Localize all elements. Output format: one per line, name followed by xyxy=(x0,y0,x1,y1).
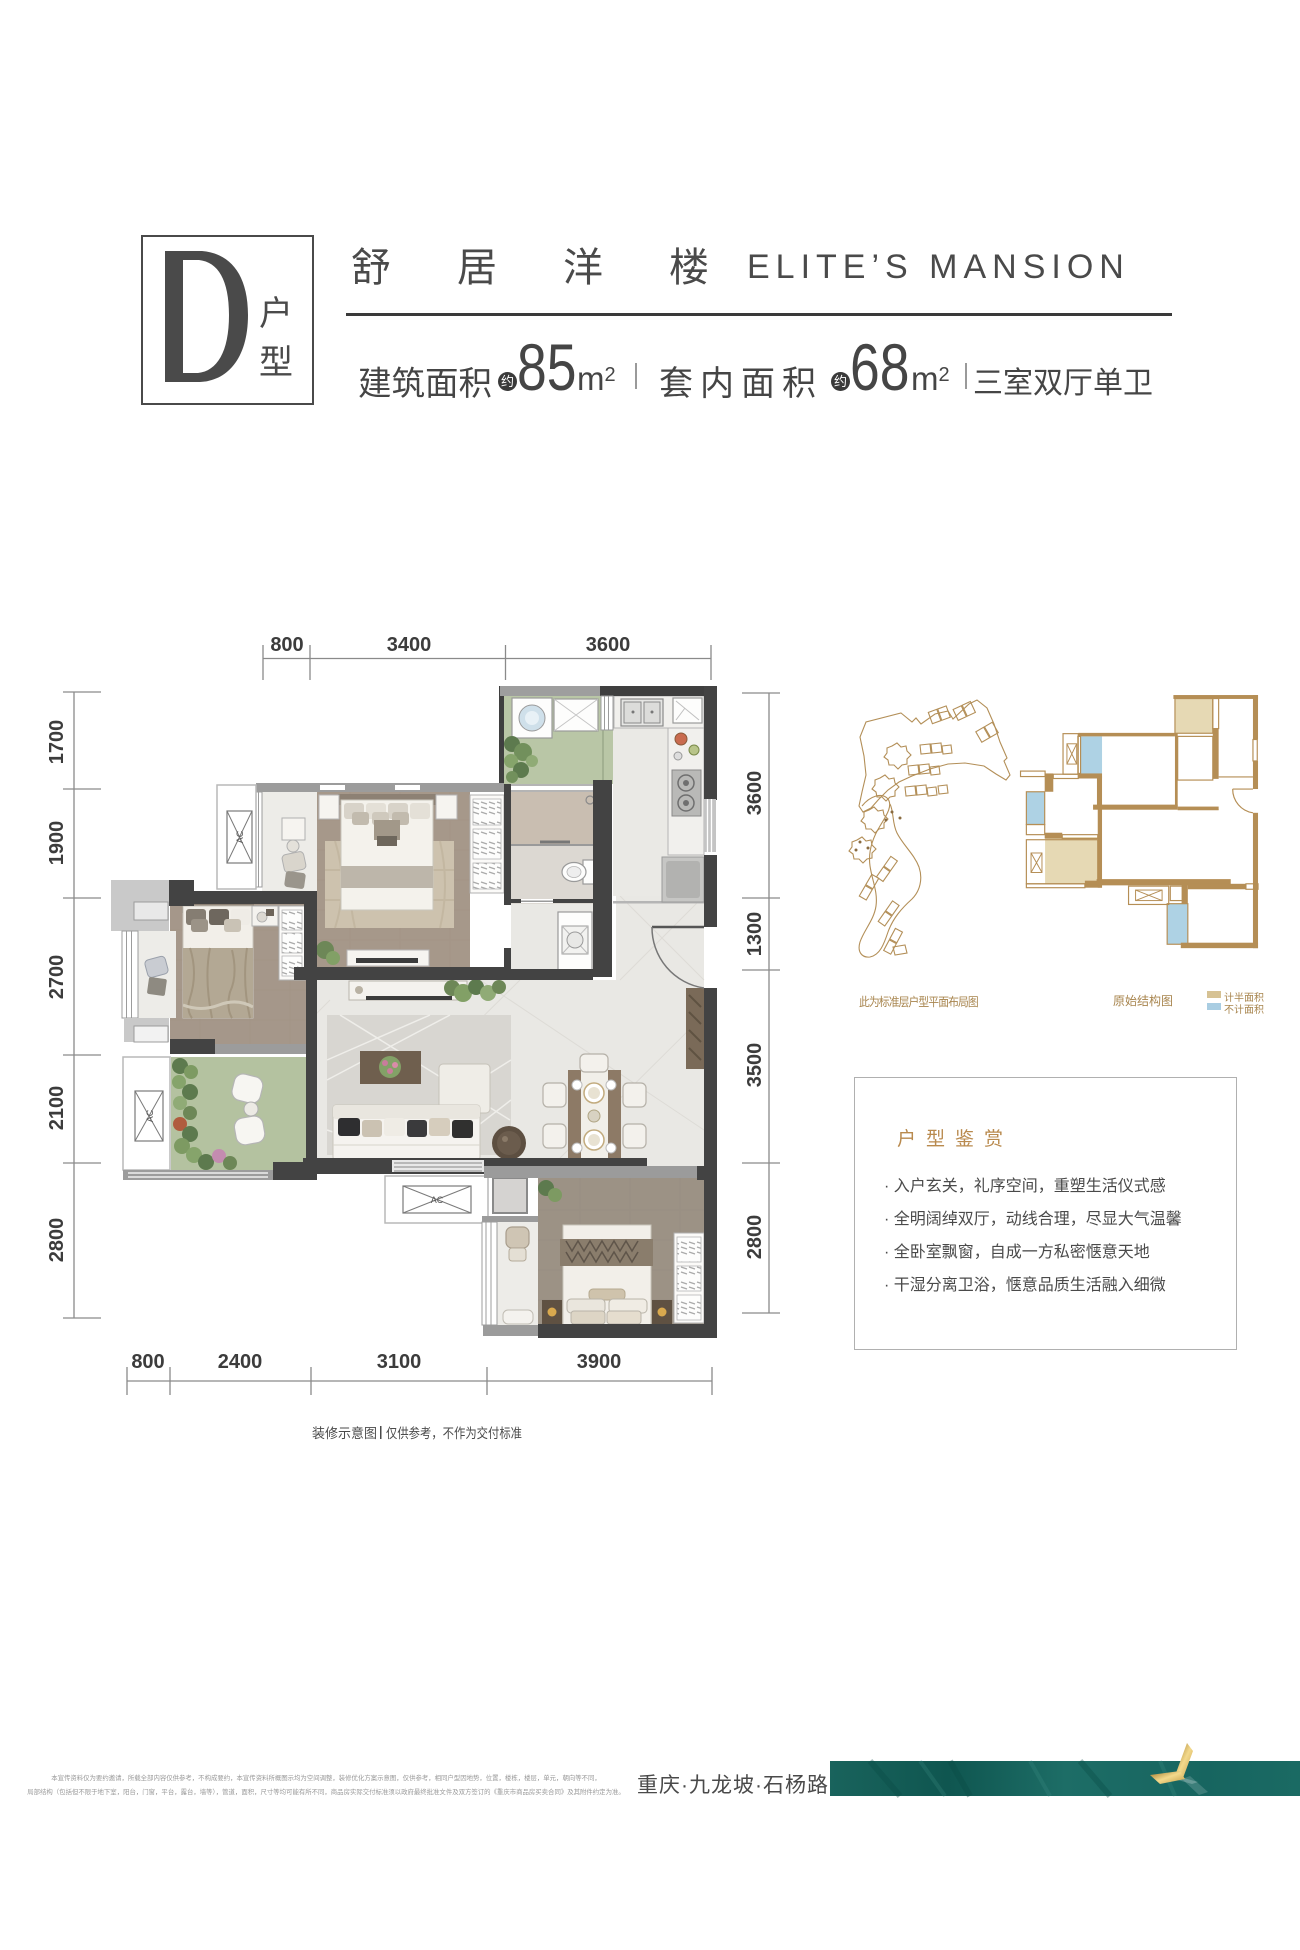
svg-text:3900: 3900 xyxy=(577,1351,622,1373)
svg-text:800: 800 xyxy=(270,634,303,656)
svg-text:AC: AC xyxy=(235,830,245,843)
svg-text:800: 800 xyxy=(131,1351,164,1373)
svg-text:1700: 1700 xyxy=(46,720,68,765)
svg-text:2700: 2700 xyxy=(46,955,68,1000)
svg-text:装修示意图: 装修示意图 xyxy=(312,1425,377,1441)
svg-text:2800: 2800 xyxy=(744,1215,766,1260)
svg-text:AC: AC xyxy=(145,1109,155,1122)
svg-text:1900: 1900 xyxy=(46,821,68,866)
svg-text:2100: 2100 xyxy=(46,1086,68,1131)
svg-text:仅供参考，不作为交付标准: 仅供参考，不作为交付标准 xyxy=(386,1425,522,1441)
svg-text:AC: AC xyxy=(431,1195,444,1205)
svg-text:3400: 3400 xyxy=(387,634,432,656)
svg-text:2400: 2400 xyxy=(218,1351,263,1373)
svg-text:3600: 3600 xyxy=(744,771,766,816)
svg-text:3100: 3100 xyxy=(377,1351,422,1373)
svg-text:1300: 1300 xyxy=(744,912,766,957)
svg-text:2800: 2800 xyxy=(46,1218,68,1263)
svg-text:3500: 3500 xyxy=(744,1043,766,1088)
svg-text:3600: 3600 xyxy=(586,634,631,656)
